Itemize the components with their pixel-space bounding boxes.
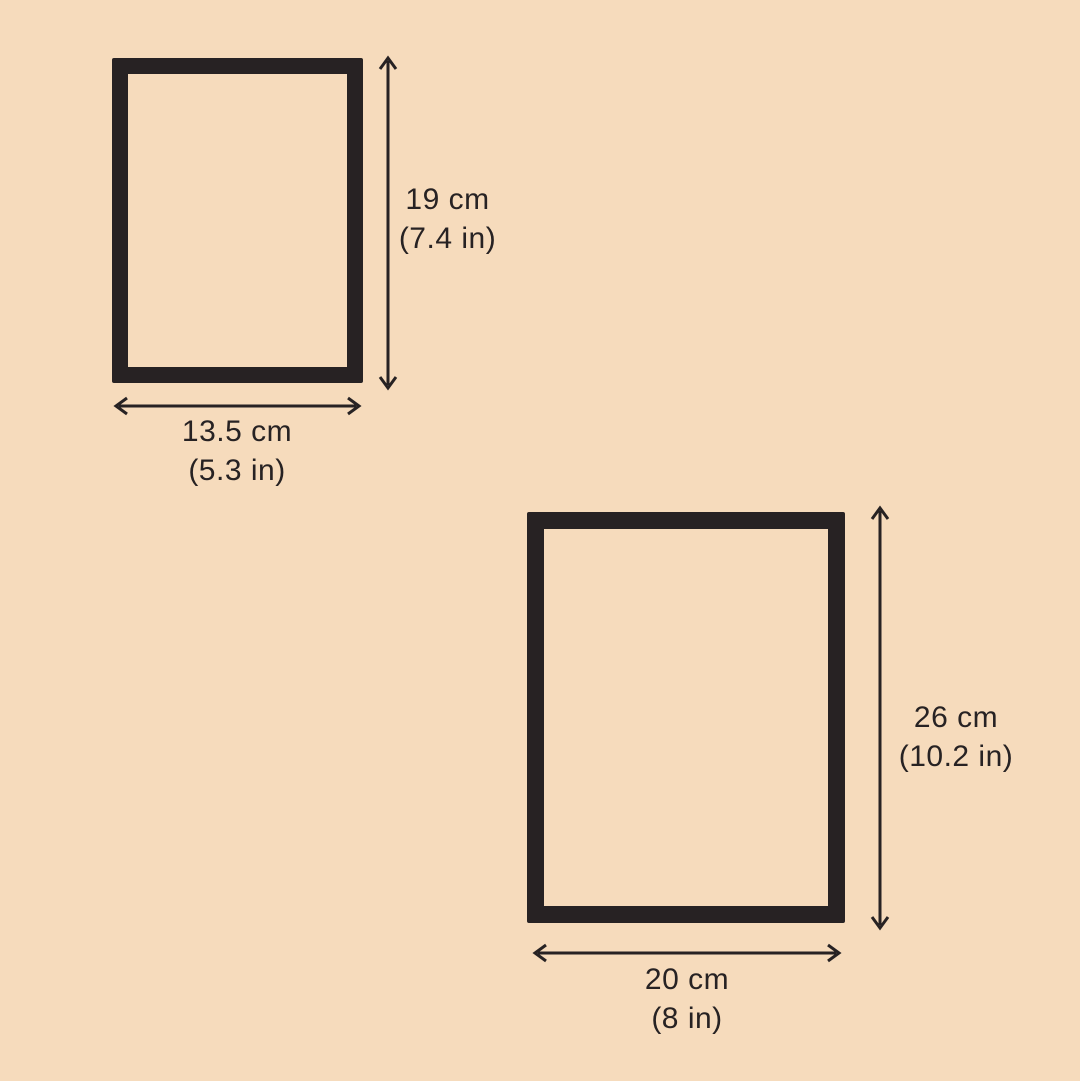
dimension-diagram: 19 cm (7.4 in) 13.5 cm (5.3 in) 26 cm (1… [0, 0, 1080, 1081]
small-height-cm: 19 cm [385, 180, 510, 219]
small-height-label: 19 cm (7.4 in) [385, 180, 510, 258]
large-height-label: 26 cm (10.2 in) [870, 698, 1042, 776]
large-width-in: (8 in) [577, 999, 797, 1038]
small-width-label: 13.5 cm (5.3 in) [127, 412, 347, 490]
small-rectangle-outline [112, 58, 363, 383]
large-height-in: (10.2 in) [870, 737, 1042, 776]
large-width-label: 20 cm (8 in) [577, 960, 797, 1038]
small-height-in: (7.4 in) [385, 219, 510, 258]
large-rectangle-outline [527, 512, 845, 923]
large-width-cm: 20 cm [577, 960, 797, 999]
small-width-in: (5.3 in) [127, 451, 347, 490]
small-width-cm: 13.5 cm [127, 412, 347, 451]
large-height-cm: 26 cm [870, 698, 1042, 737]
